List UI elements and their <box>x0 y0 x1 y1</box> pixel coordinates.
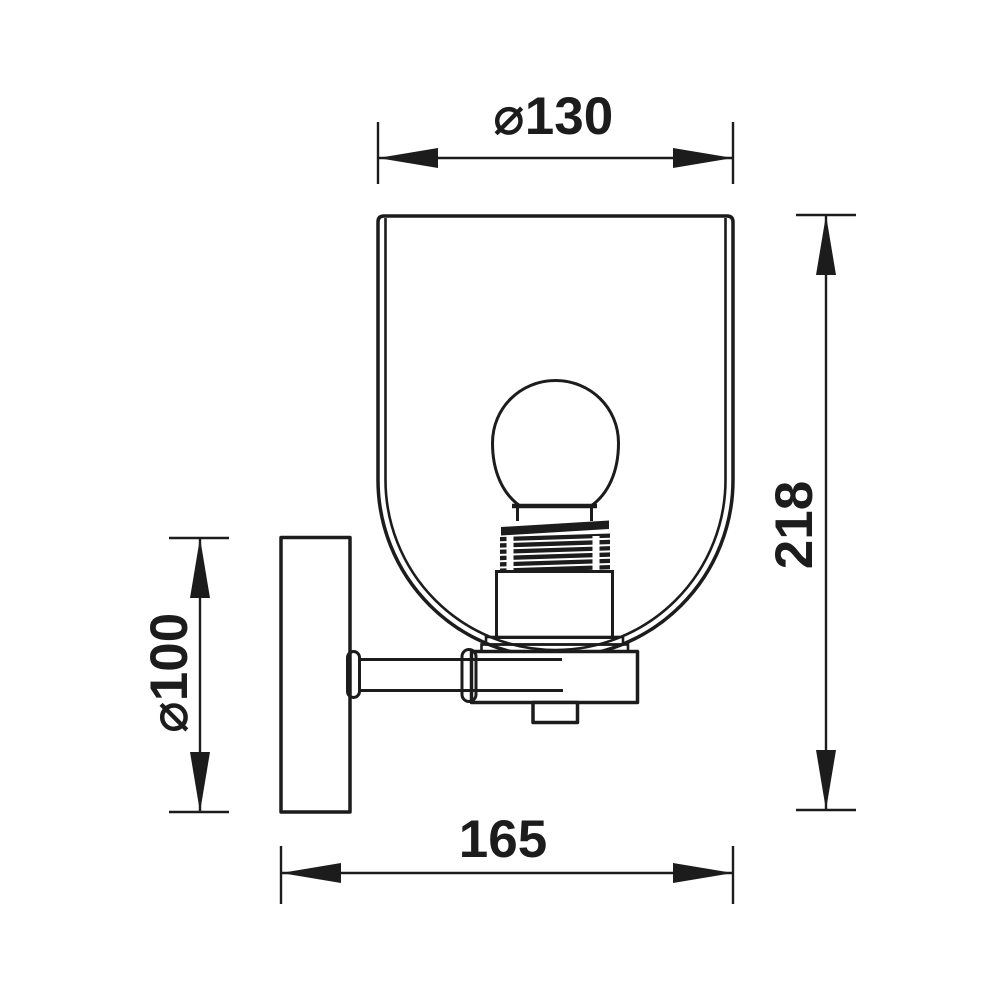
dimension-shade-diameter: ⌀130 <box>378 87 733 184</box>
bulb-globe <box>493 381 619 507</box>
arrowhead-top <box>816 215 836 275</box>
socket-body <box>497 572 613 638</box>
arrowhead-left <box>378 148 438 168</box>
bottom-knob <box>533 703 578 723</box>
dimension-label-shade-diameter: ⌀130 <box>493 87 613 146</box>
dimension-backplate-diameter: ⌀100 <box>140 538 229 812</box>
screw-thread <box>500 534 610 577</box>
technical-dimension-drawing: ⌀130 218 ⌀100 165 <box>0 0 1000 1000</box>
wall-backplate <box>281 538 350 813</box>
arrowhead-bottom <box>816 750 836 810</box>
arm-housing <box>472 652 638 723</box>
screw-cap-collar <box>501 521 609 536</box>
dimension-label-projection: 165 <box>459 810 547 869</box>
dimension-projection: 165 <box>281 810 733 904</box>
arrowhead-right <box>673 863 733 883</box>
light-bulb <box>493 381 619 522</box>
bulb-socket <box>497 521 613 638</box>
arrowhead-top <box>190 538 210 598</box>
arrowhead-right <box>673 148 733 168</box>
drawing-canvas: ⌀130 218 ⌀100 165 <box>0 0 1000 1000</box>
dimension-overall-height: 218 <box>765 215 856 810</box>
dimension-label-overall-height: 218 <box>765 481 824 569</box>
dimension-label-backplate-diameter: ⌀100 <box>140 613 199 733</box>
arrowhead-left <box>281 863 341 883</box>
arrowhead-bottom <box>190 752 210 812</box>
